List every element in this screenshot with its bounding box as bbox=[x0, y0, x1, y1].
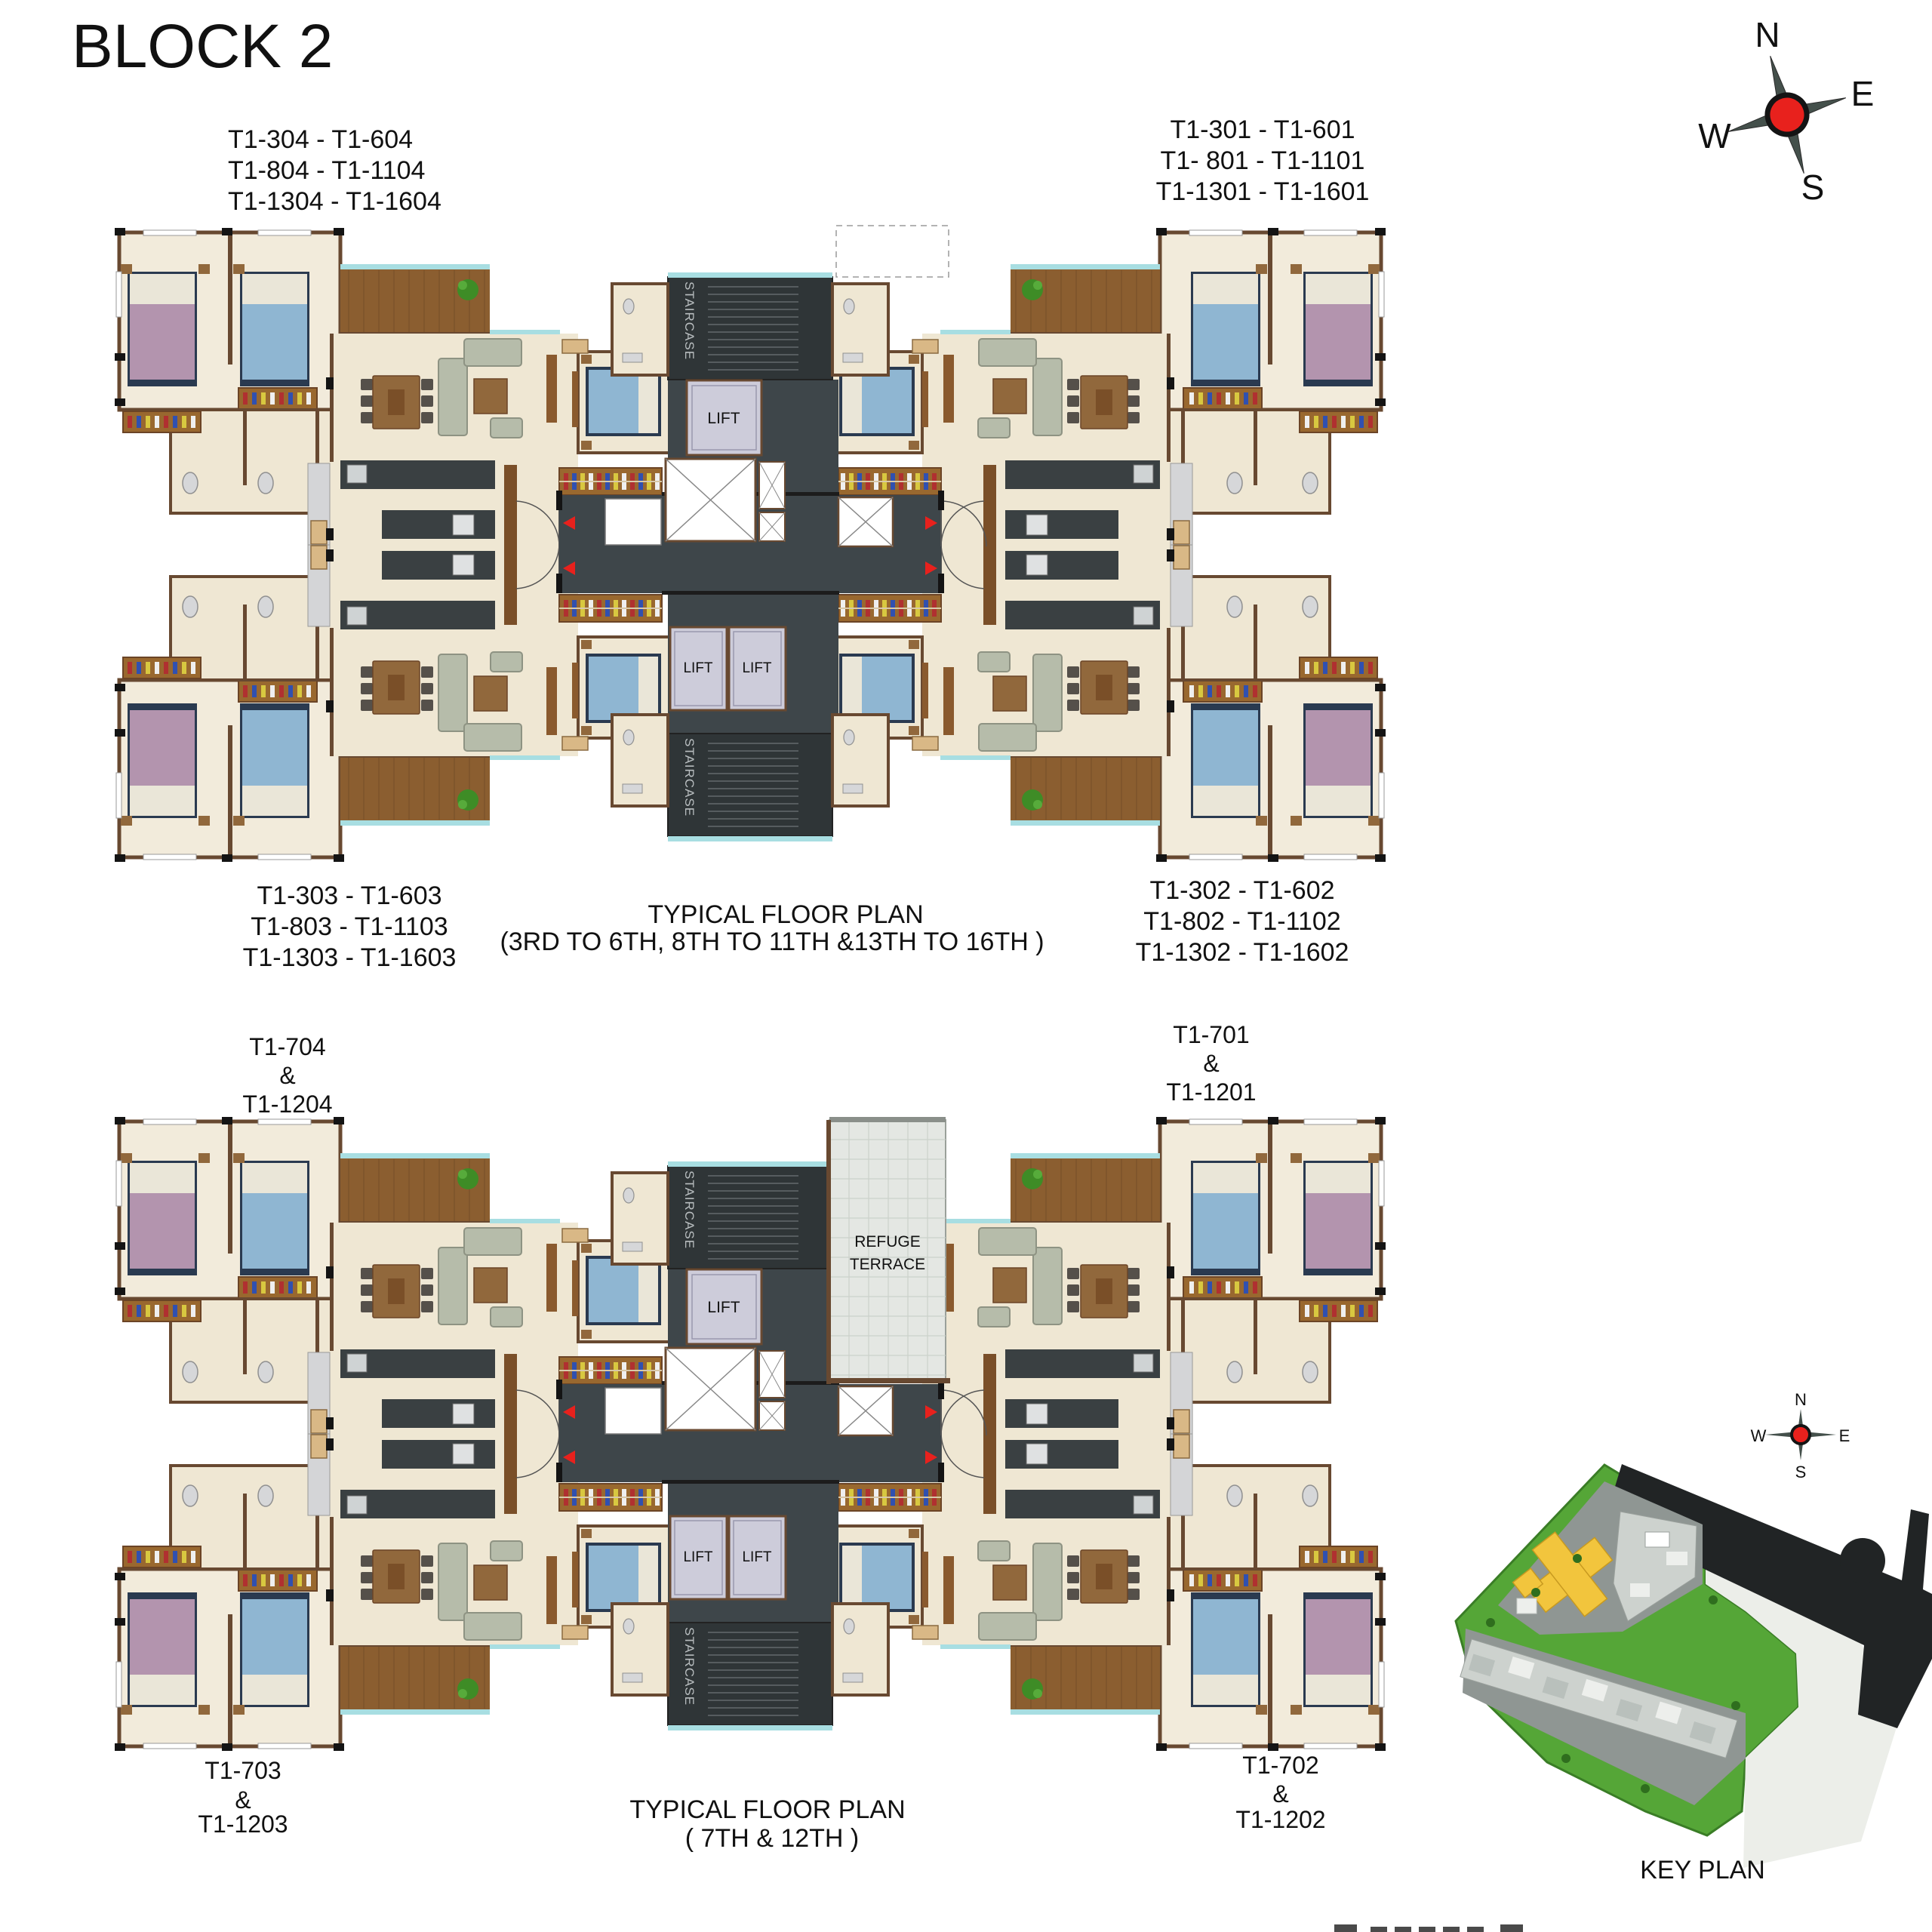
svg-text:T1-304 - T1-604: T1-304 - T1-604 bbox=[228, 125, 413, 154]
svg-text:&: & bbox=[235, 1786, 251, 1814]
svg-text:T1-803 - T1-1103: T1-803 - T1-1103 bbox=[251, 912, 448, 941]
svg-text:(3RD TO 6TH, 8TH TO 11TH &13TH: (3RD TO 6TH, 8TH TO 11TH &13TH TO 16TH ) bbox=[500, 928, 1044, 956]
svg-text:LIFT: LIFT bbox=[683, 660, 712, 676]
svg-text:&: & bbox=[1272, 1780, 1288, 1807]
svg-text:T1-1303 - T1-1603: T1-1303 - T1-1603 bbox=[243, 943, 457, 972]
svg-text:TERRACE: TERRACE bbox=[850, 1256, 925, 1273]
svg-text:&: & bbox=[279, 1062, 295, 1089]
svg-text:T1-704: T1-704 bbox=[249, 1033, 325, 1060]
svg-text:STAIRCASE: STAIRCASE bbox=[682, 1627, 697, 1706]
svg-text:BLOCK 2: BLOCK 2 bbox=[72, 12, 333, 81]
svg-text:KEY PLAN: KEY PLAN bbox=[1640, 1856, 1765, 1884]
svg-text:&: & bbox=[1203, 1050, 1219, 1077]
svg-text:W: W bbox=[1751, 1426, 1767, 1445]
svg-text:T1-703: T1-703 bbox=[205, 1757, 281, 1784]
svg-text:T1-302 - T1-602: T1-302 - T1-602 bbox=[1149, 876, 1334, 905]
svg-text:N: N bbox=[1795, 1390, 1807, 1409]
svg-text:W: W bbox=[1698, 116, 1731, 155]
svg-text:STAIRCASE: STAIRCASE bbox=[682, 1171, 697, 1249]
svg-text:T1-802 - T1-1102: T1-802 - T1-1102 bbox=[1143, 907, 1340, 936]
svg-text:( 7TH & 12TH ): ( 7TH & 12TH ) bbox=[685, 1824, 859, 1853]
svg-text:E: E bbox=[1839, 1426, 1850, 1445]
svg-text:T1- 801 - T1-1101: T1- 801 - T1-1101 bbox=[1161, 146, 1365, 175]
svg-text:T1-1304 - T1-1604: T1-1304 - T1-1604 bbox=[228, 187, 441, 216]
svg-text:T1-301 - T1-601: T1-301 - T1-601 bbox=[1170, 115, 1355, 144]
svg-text:E: E bbox=[1851, 74, 1875, 113]
svg-text:N: N bbox=[1755, 15, 1780, 54]
svg-text:STAIRCASE: STAIRCASE bbox=[682, 738, 697, 817]
svg-text:LIFT: LIFT bbox=[742, 660, 771, 676]
svg-text:T1-1204: T1-1204 bbox=[242, 1091, 332, 1118]
svg-text:LIFT: LIFT bbox=[742, 1549, 771, 1565]
svg-text:REFUGE: REFUGE bbox=[854, 1233, 921, 1251]
svg-text:T1-701: T1-701 bbox=[1173, 1021, 1249, 1048]
svg-text:TYPICAL FLOOR PLAN: TYPICAL FLOOR PLAN bbox=[648, 900, 923, 929]
svg-text:T1-1201: T1-1201 bbox=[1166, 1078, 1256, 1106]
svg-text:T1-1202: T1-1202 bbox=[1235, 1806, 1325, 1833]
svg-text:LIFT: LIFT bbox=[683, 1549, 712, 1565]
svg-text:S: S bbox=[1795, 1463, 1807, 1481]
svg-text:S: S bbox=[1801, 168, 1825, 207]
svg-text:LIFT: LIFT bbox=[707, 1299, 740, 1316]
svg-text:T1-1203: T1-1203 bbox=[198, 1810, 288, 1838]
svg-text:T1-1301 - T1-1601: T1-1301 - T1-1601 bbox=[1156, 177, 1370, 206]
svg-text:TYPICAL FLOOR PLAN: TYPICAL FLOOR PLAN bbox=[629, 1795, 905, 1824]
svg-text:LIFT: LIFT bbox=[707, 410, 740, 427]
svg-text:STAIRCASE: STAIRCASE bbox=[682, 281, 697, 360]
svg-text:T1-1302 - T1-1602: T1-1302 - T1-1602 bbox=[1136, 938, 1349, 967]
svg-text:T1-702: T1-702 bbox=[1242, 1752, 1318, 1779]
svg-text:T1-303 - T1-603: T1-303 - T1-603 bbox=[257, 881, 441, 910]
svg-text:T1-804 - T1-1104: T1-804 - T1-1104 bbox=[228, 156, 425, 185]
